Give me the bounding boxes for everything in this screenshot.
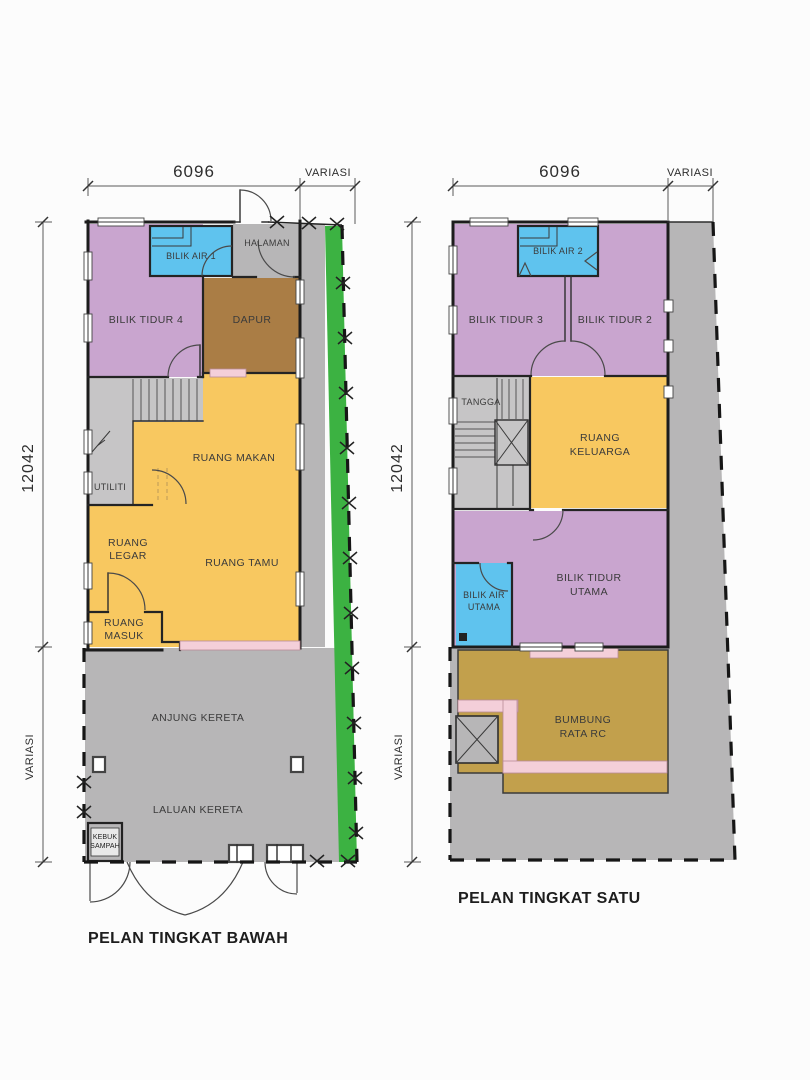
halaman-paving [233,224,325,278]
roof-walkway-c [503,761,667,773]
room-label-ruang-makan: RUANG MAKAN [193,452,276,464]
ground-dim-top-variasi: VARIASI [305,167,351,179]
ground-dim-height: 12042 [20,443,37,493]
first-plan-title: PELAN TINGKAT SATU [458,890,641,907]
ground-floor-plan: 6096 VARIASI 12042 VARIASI BILIK AIR 1 H… [20,162,363,947]
room-label-bilik-tidur-2: BILIK TIDUR 2 [578,314,652,326]
floor-plan-canvas: 6096 VARIASI 12042 VARIASI BILIK AIR 1 H… [0,0,810,1080]
room-label-bilik-air-1: BILIK AIR 1 [166,251,216,261]
ground-dim-width: 6096 [173,162,215,181]
porch-column-left [93,757,105,772]
room-label-ruang-tamu: RUANG TAMU [205,557,279,569]
ground-rooms [88,224,300,647]
room-label-bilik-tidur-3: BILIK TIDUR 3 [469,314,543,326]
ground-stair-corridor-utiliti [88,422,133,505]
front-gate-swing [240,190,271,221]
kebuk-sampah-box [88,823,122,861]
first-dim-top-variasi: VARIASI [667,167,713,179]
room-label-ruang-legar: RUANGLEGAR [108,537,148,562]
porch-column-right [291,757,303,772]
veranda-threshold [180,641,300,650]
ground-stairs [88,378,203,422]
ground-dim-side-variasi: VARIASI [24,734,36,780]
floor-plan-sheet: 6096 VARIASI 12042 VARIASI BILIK AIR 1 H… [0,0,810,1080]
room-label-laluan-kereta: LALUAN KERETA [153,804,243,816]
room-label-ruang-masuk: RUANGMASUK [104,617,144,642]
floor-trap [459,633,467,641]
room-label-tangga: TANGGA [461,397,500,407]
room-label-anjung-kereta: ANJUNG KERETA [152,712,245,724]
first-dim-height: 12042 [389,443,406,493]
gate-pillars [229,845,303,862]
room-label-halaman: HALAMAN [244,238,290,248]
first-dim-side-variasi: VARIASI [393,734,405,780]
room-label-bilik-air-2: BILIK AIR 2 [533,246,583,256]
room-label-utiliti: UTILITI [94,482,126,492]
open-terrace-box [456,716,498,763]
first-dim-width: 6096 [539,162,581,181]
room-label-dapur: DAPUR [233,314,272,326]
driveway-gates [90,862,297,915]
ground-plan-title: PELAN TINGKAT BAWAH [88,930,288,947]
first-floor-plan: 6096 VARIASI 12042 VARIASI BILIK AIR 2 B… [389,162,735,907]
room-label-bilik-tidur-4: BILIK TIDUR 4 [109,314,183,326]
dapur-threshold [210,369,246,377]
